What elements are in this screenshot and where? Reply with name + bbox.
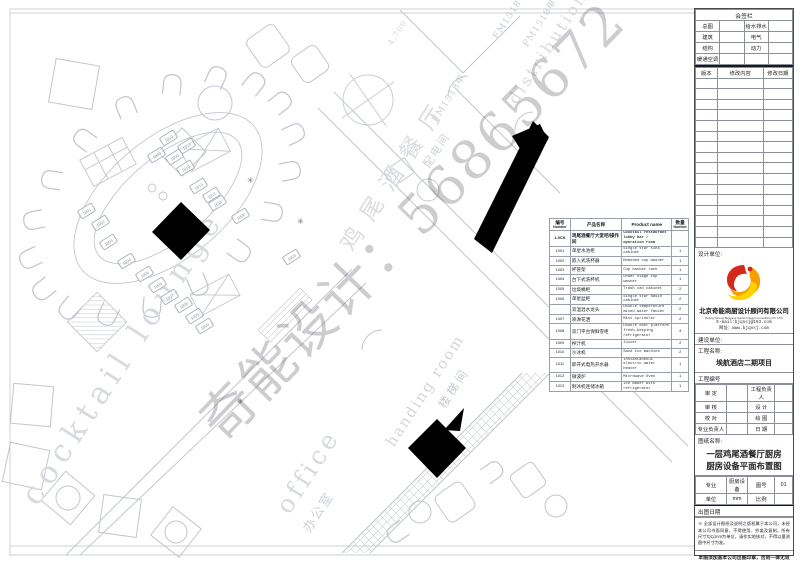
table-cell: 1011: [550, 357, 571, 372]
revision-header: 版本 修改内容 修改日期: [696, 68, 793, 79]
title-block: 会签栏 总图给水排水建筑电气结构动力暖通空调 版本 修改内容 修改日期 设计单位…: [694, 8, 794, 556]
revision-row: [696, 110, 793, 121]
table-cell: Instantaneous electric water heater: [622, 357, 672, 372]
table-cell: [726, 402, 747, 413]
table-cell: [726, 413, 747, 424]
table-cell: [763, 184, 792, 195]
table-cell: Single star basin cabinet: [622, 294, 672, 304]
table-cell: [763, 131, 792, 142]
signature-panel: 会签栏 总图给水排水建筑电气结构动力暖通空调: [695, 9, 793, 67]
table-cell: 1: [672, 266, 689, 275]
table-cell: [763, 226, 792, 237]
table-cell: [763, 205, 792, 216]
table-cell: Under stage cup washer: [622, 275, 672, 285]
table-cell: [720, 43, 744, 54]
equipment-row: 1001单星水池柜Single star sink cabinet1: [550, 246, 689, 256]
table-cell: 总图: [696, 21, 720, 32]
table-cell: 动力: [744, 43, 768, 54]
table-cell: 2: [672, 348, 689, 357]
table-cell: 嵌入式洗杯器: [570, 257, 621, 266]
table-cell: [763, 173, 792, 184]
table-cell: [775, 385, 793, 402]
table-cell: 1002: [550, 257, 571, 266]
table-cell: [717, 205, 763, 216]
table-cell: 微波炉: [570, 372, 621, 381]
equipment-row: 双温混水龙头Double temperature mixed water fau…: [550, 305, 689, 315]
equipment-row: 1003杯筐架Cup basket rack1: [550, 266, 689, 275]
titleblock-row: 专业负责人日 期: [696, 424, 793, 435]
table-cell: 1001: [550, 246, 571, 256]
equipment-row: 1-0CK鸡尾酒餐厅大堂吧/操作间Cocktail restaurant lob…: [550, 231, 689, 246]
table-cell: Double door platform fresh-keeping refri…: [622, 324, 672, 339]
table-cell: 审 核: [696, 402, 727, 413]
table-cell: [763, 195, 792, 206]
table-cell: 给水排水: [744, 21, 768, 32]
table-cell: 设 计: [748, 402, 775, 413]
table-cell: [717, 152, 763, 163]
table-cell: [696, 184, 718, 195]
staff-grid: 审 定工程负责人审 核设 计校 对绘 图专业负责人日 期: [695, 384, 793, 435]
titleblock-row: 专业厨房设备图号01: [696, 477, 793, 494]
drawing-name-line2: 厨房设备平面布置图: [695, 460, 793, 472]
company-name-cn: 北京奇能商厨设计顾问有限公司: [695, 308, 793, 316]
revision-row: [696, 237, 793, 248]
table-cell: [768, 21, 792, 32]
table-cell: 01: [775, 477, 793, 494]
table-cell: [775, 402, 793, 413]
table-cell: [763, 120, 792, 131]
titleblock-row: 单位mm比例: [696, 494, 793, 505]
table-cell: [717, 142, 763, 153]
equipment-row: 1012微波炉Microwave Oven1: [550, 372, 689, 381]
drawing-name-line1: 一层鸡尾酒餐厅厨房: [695, 448, 793, 460]
table-cell: 1-0CK: [550, 231, 571, 246]
table-cell: 2: [672, 305, 689, 315]
table-cell: 单星盆柜: [570, 294, 621, 304]
table-cell: 2: [672, 315, 689, 324]
drawing-name-label: 图纸名称:: [695, 435, 793, 445]
table-cell: [768, 54, 792, 65]
table-cell: [775, 413, 793, 424]
table-cell: 杯筐架: [570, 266, 621, 275]
table-cell: Double temperature mixed water faucet: [622, 305, 672, 315]
table-cell: [550, 305, 571, 315]
table-cell: 1003: [550, 266, 571, 275]
table-cell: [696, 237, 718, 248]
project-no-section: 工程编号: [695, 373, 793, 384]
project-name-section: 工程名称: 埃航酒店二期项目: [695, 345, 793, 373]
revision-row: [696, 195, 793, 206]
table-cell: 比例: [748, 494, 775, 505]
table-cell: 审 定: [696, 385, 727, 402]
company-website: 网址：www.bjqnsj.com: [695, 326, 793, 332]
table-cell: 工程负责人: [748, 385, 775, 402]
stamp-notice: 本图须加盖本公司出图印章，否则一律无效: [695, 550, 793, 564]
table-cell: 1005: [550, 285, 571, 294]
table-cell: [696, 120, 718, 131]
equipment-row: 1007喷淋花洒Mist sprinkler2: [550, 315, 689, 324]
table-cell: Juicer: [622, 339, 672, 348]
table-cell: [717, 195, 763, 206]
table-cell: [717, 184, 763, 195]
table-cell: [696, 205, 718, 216]
table-cell: [763, 110, 792, 121]
signature-row: 建筑电气: [696, 32, 793, 43]
titleblock-row: 审 定工程负责人: [696, 385, 793, 402]
table-cell: [717, 226, 763, 237]
table-cell: [763, 99, 792, 110]
table-cell: [763, 78, 792, 89]
table-cell: [726, 424, 747, 435]
table-cell: 2: [672, 294, 689, 304]
table-cell: [696, 195, 718, 206]
table-cell: 1009: [550, 339, 571, 348]
table-cell: Embeded cup washer: [622, 257, 672, 266]
table-cell: [763, 163, 792, 174]
table-cell: [696, 142, 718, 153]
revision-row: [696, 216, 793, 227]
table-cell: [696, 226, 718, 237]
table-cell: 厨房设备: [726, 477, 747, 494]
company-logo: [721, 261, 767, 305]
signature-panel-title: 会签栏: [696, 10, 793, 21]
table-cell: [720, 21, 744, 32]
table-cell: [775, 494, 793, 505]
table-cell: [717, 78, 763, 89]
table-cell: [696, 216, 718, 227]
table-cell: 电气: [744, 32, 768, 43]
table-cell: 单位: [696, 494, 727, 505]
table-cell: 日 期: [748, 424, 775, 435]
table-cell: 榨汁机: [570, 339, 621, 348]
build-unit-section: 建设单位:: [695, 334, 793, 345]
revision-row: [696, 173, 793, 184]
table-cell: [720, 32, 744, 43]
table-cell: 1013: [550, 381, 571, 391]
table-cell: mm: [726, 494, 747, 505]
table-cell: Sand ice machine: [622, 348, 672, 357]
table-cell: 即开式电热开水器: [570, 357, 621, 372]
table-cell: [763, 142, 792, 153]
revision-panel: 版本 修改内容 修改日期: [695, 67, 793, 248]
table-cell: [717, 163, 763, 174]
titleblock-row: 审 核设 计: [696, 402, 793, 413]
equipment-row: 1013制冰机连储冰箱Ice maker with refrigerator1: [550, 381, 689, 391]
drawing-name-section: 图纸名称: 一层鸡尾酒餐厅厨房 厨房设备平面布置图: [695, 435, 793, 476]
plot-date-section: 出图日期: [695, 505, 793, 517]
table-cell: [717, 110, 763, 121]
table-cell: Mist sprinkler: [622, 315, 672, 324]
table-cell: 1006: [550, 294, 571, 304]
revision-row: [696, 99, 793, 110]
table-cell: Single star sink cabinet: [622, 246, 672, 256]
table-cell: 1008: [550, 324, 571, 339]
table-cell: [672, 231, 689, 246]
table-cell: [717, 237, 763, 248]
table-cell: 建筑: [696, 32, 720, 43]
company-name-en: Beijing Qineng Business Kitchen Design C…: [700, 316, 788, 320]
equipment-row: 1005垃圾桶柜Trash can cabinet2: [550, 285, 689, 294]
table-cell: 专业: [696, 477, 727, 494]
table-cell: 1: [672, 275, 689, 285]
table-cell: 2: [672, 285, 689, 294]
equipment-row: 1002嵌入式洗杯器Embeded cup washer1: [550, 257, 689, 266]
table-cell: [726, 385, 747, 402]
table-cell: 专业负责人: [696, 424, 727, 435]
table-cell: [717, 131, 763, 142]
table-cell: 双温混水龙头: [570, 305, 621, 315]
project-name-label: 工程名称:: [695, 345, 793, 355]
table-cell: 1004: [550, 275, 571, 285]
revision-row: [696, 163, 793, 174]
table-cell: [768, 43, 792, 54]
table-cell: 垃圾桶柜: [570, 285, 621, 294]
table-cell: 1007: [550, 315, 571, 324]
table-cell: [696, 89, 718, 100]
table-cell: 喷淋花洒: [570, 315, 621, 324]
table-cell: [717, 216, 763, 227]
table-cell: 鸡尾酒餐厅大堂吧/操作间: [570, 231, 621, 246]
design-unit-label: 设计单位:: [695, 248, 793, 258]
table-cell: 双门平台保鲜雪柜: [570, 324, 621, 339]
table-cell: 沙冰机: [570, 348, 621, 357]
table-cell: [744, 54, 768, 65]
signature-row: 总图给水排水: [696, 21, 793, 32]
table-cell: [717, 173, 763, 184]
table-cell: [696, 152, 718, 163]
table-cell: [717, 89, 763, 100]
table-cell: 结构: [696, 43, 720, 54]
revision-row: [696, 184, 793, 195]
meta-grid: 专业厨房设备图号01单位mm比例: [695, 476, 793, 505]
equipment-row: 1009榨汁机Juicer2: [550, 339, 689, 348]
table-cell: [696, 110, 718, 121]
project-no-label: 工程编号: [695, 373, 793, 383]
table-cell: 1: [672, 246, 689, 256]
build-unit-label: 建设单位:: [695, 334, 793, 344]
revision-row: [696, 205, 793, 216]
plot-date-label: 出图日期: [695, 506, 793, 516]
table-cell: 单星水池柜: [570, 246, 621, 256]
table-cell: 1010: [550, 348, 571, 357]
revision-row: [696, 152, 793, 163]
table-cell: 制冰机连储冰箱: [570, 381, 621, 391]
table-cell: [696, 173, 718, 184]
revision-row: [696, 142, 793, 153]
table-cell: [763, 152, 792, 163]
table-cell: [720, 54, 744, 65]
table-cell: [763, 237, 792, 248]
table-cell: [763, 89, 792, 100]
project-name: 埃航酒店二期项目: [695, 355, 793, 372]
table-cell: Microwave Oven: [622, 372, 672, 381]
equipment-row: 1011即开式电热开水器Instantaneous electric water…: [550, 357, 689, 372]
table-cell: [696, 163, 718, 174]
equipment-row: 1008双门平台保鲜雪柜Double door platform fresh-k…: [550, 324, 689, 339]
table-cell: 4: [672, 324, 689, 339]
revision-row: [696, 131, 793, 142]
equipment-row: 1006单星盆柜Single star basin cabinet2: [550, 294, 689, 304]
table-cell: Ice maker with refrigerator: [622, 381, 672, 391]
table-cell: [717, 120, 763, 131]
table-cell: 1012: [550, 372, 571, 381]
copyright-note: ※ 全部设计图纸及说明之版权属于本公司，未经本公司书面同意，不得使用、抄袭及复制…: [695, 517, 793, 549]
equipment-table: 编号Number 产品名称 Product name 数量Number 1-0C…: [549, 218, 689, 392]
equipment-table-header: 编号Number 产品名称 Product name 数量Number: [550, 219, 689, 231]
table-cell: [696, 99, 718, 110]
table-cell: Cocktail restaurant lobby bar / operatio…: [622, 231, 672, 246]
equipment-row: 1010沙冰机Sand ice machine2: [550, 348, 689, 357]
table-cell: 1: [672, 381, 689, 391]
revision-row: [696, 226, 793, 237]
table-cell: [763, 216, 792, 227]
table-cell: [768, 32, 792, 43]
table-cell: 台下式洗杯机: [570, 275, 621, 285]
table-cell: 2: [672, 339, 689, 348]
titleblock-row: 校 对绘 图: [696, 413, 793, 424]
table-cell: 图号: [748, 477, 775, 494]
signature-row: 结构动力: [696, 43, 793, 54]
table-cell: 1: [672, 372, 689, 381]
equipment-row: 1004台下式洗杯机Under stage cup washer1: [550, 275, 689, 285]
signature-row: 暖通空调: [696, 54, 793, 65]
table-cell: 校 对: [696, 413, 727, 424]
revision-row: [696, 89, 793, 100]
table-cell: [717, 99, 763, 110]
table-cell: 暖通空调: [696, 54, 720, 65]
revision-row: [696, 78, 793, 89]
table-cell: Cup basket rack: [622, 266, 672, 275]
table-cell: 1: [672, 257, 689, 266]
drawing-sheet: 奇能设计：56865672 cocktail lounge鸡尾酒餐厅handin…: [0, 0, 800, 564]
revision-row: [696, 120, 793, 131]
table-cell: 1: [672, 357, 689, 372]
table-cell: [696, 131, 718, 142]
design-unit-section: 设计单位: 北京奇能商厨设计顾问有限公司 Beijing Qineng Busi…: [695, 248, 793, 334]
table-cell: Trash can cabinet: [622, 285, 672, 294]
table-cell: [696, 78, 718, 89]
table-cell: 绘 图: [748, 413, 775, 424]
table-cell: [775, 424, 793, 435]
